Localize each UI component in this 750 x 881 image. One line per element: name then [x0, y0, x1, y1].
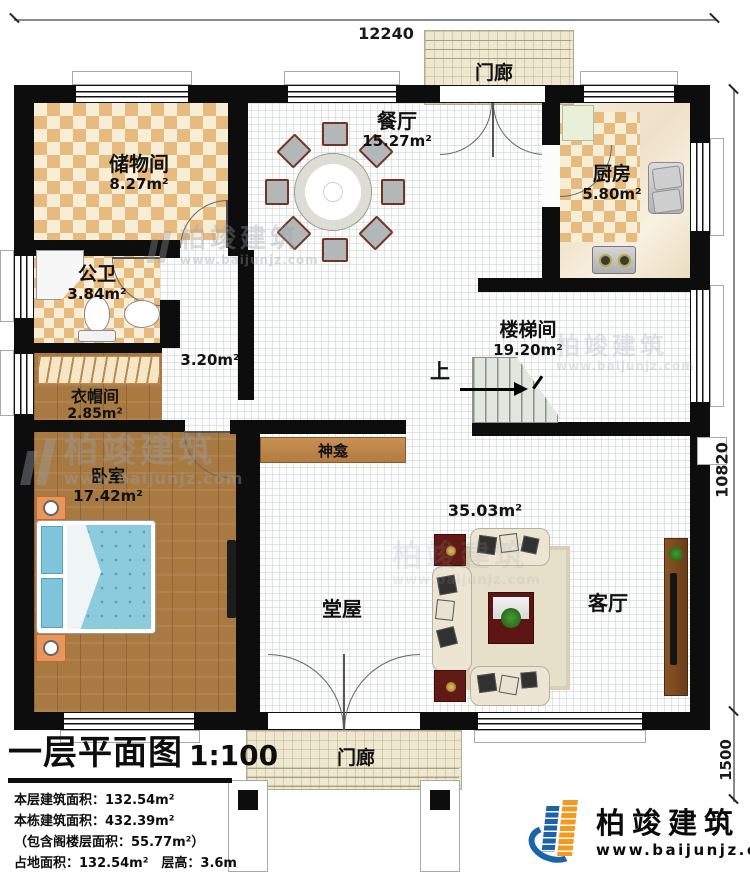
- watermark-url: www.baijunjz.com: [64, 468, 243, 490]
- watermark-url: www.baijunjz.com: [392, 572, 541, 590]
- dimension-line: [733, 90, 735, 802]
- decor-icon: [446, 682, 456, 692]
- dining-table-center: [323, 182, 343, 202]
- cushion: [499, 675, 520, 696]
- room-area: 5.80m²: [582, 186, 641, 203]
- chair-icon: [265, 179, 289, 205]
- burner-icon: [599, 254, 612, 267]
- stove: [592, 246, 636, 274]
- window: [14, 256, 34, 318]
- window-sill: [284, 71, 400, 85]
- window-sill: [474, 730, 646, 743]
- door-opening: [440, 85, 545, 103]
- info-line: 本层建筑面积：132.54m²: [14, 790, 237, 811]
- brand-website: www.baijunjz.com: [596, 843, 750, 858]
- tv-cabinet: [664, 538, 688, 696]
- cushion: [477, 673, 497, 693]
- window-sill: [710, 138, 724, 236]
- shrine-label: 神龛: [318, 443, 348, 460]
- chair-icon: [322, 238, 348, 262]
- cushion: [435, 599, 455, 621]
- main-hall-area-label: 35.03m²: [448, 502, 522, 520]
- dimension-right: 10820: [713, 442, 732, 498]
- wall-segment: [34, 343, 162, 353]
- room-label-cloakroom: 衣帽间 2.85m²: [67, 388, 122, 422]
- pillow: [41, 578, 63, 628]
- window: [478, 712, 642, 730]
- porch-bottom-label: 门廊: [337, 748, 375, 770]
- watermark-logo-icon: [17, 439, 61, 485]
- room-name: 厨房: [582, 164, 641, 186]
- room-area: 2.85m²: [67, 406, 122, 422]
- door-leaf: [492, 103, 494, 157]
- info-line: 占地面积：132.54m² 层高：3.6m: [14, 853, 237, 874]
- nightstand: [36, 634, 66, 662]
- room-label-stairwell: 楼梯间 19.20m²: [493, 320, 563, 359]
- room-name: 餐厅: [362, 110, 432, 133]
- room-name: 衣帽间: [67, 388, 122, 406]
- tv-icon: [670, 573, 677, 665]
- sink-basin: [652, 165, 683, 191]
- bathroom-sink: [124, 300, 160, 328]
- room-name: 楼梯间: [493, 320, 563, 342]
- window-sill: [710, 285, 724, 407]
- room-label-storage: 储物间 8.27m²: [109, 153, 169, 193]
- porch-top-label: 门廊: [475, 63, 513, 85]
- room-area: 8.27m²: [109, 176, 169, 193]
- room-area: 19.20m²: [493, 342, 563, 359]
- info-line: （包含阁楼层面积：55.77m²）: [14, 832, 237, 853]
- room-label-bathroom: 公卫 3.84m²: [67, 264, 126, 303]
- fridge: [562, 105, 594, 141]
- room-label-main-hall: 堂屋: [322, 598, 362, 621]
- chair-icon: [381, 179, 405, 205]
- bed: [36, 520, 156, 634]
- window-sill: [0, 250, 14, 322]
- watermark-name: 柏竣建筑: [64, 434, 243, 468]
- watermark-url: www.baijunjz.com: [180, 252, 319, 269]
- watermark-url: www.baijunjz.com: [556, 358, 695, 375]
- dimension-tick: [709, 13, 720, 24]
- plan-title: 一层平面图: [8, 736, 183, 770]
- lamp-icon: [43, 500, 59, 516]
- wall-segment: [238, 250, 254, 400]
- nightstand: [36, 496, 66, 520]
- wall-segment: [160, 300, 180, 348]
- dimension-porch: 1500: [717, 739, 735, 781]
- window: [584, 85, 674, 103]
- room-area: 15.27m²: [362, 133, 432, 150]
- burner-icon: [618, 254, 631, 267]
- watermark: 柏竣建筑 www.baijunjz.com: [148, 226, 319, 269]
- watermark-logo-icon: [145, 231, 176, 263]
- pillow: [41, 526, 63, 574]
- window: [288, 85, 396, 103]
- porch-column-core: [430, 790, 450, 810]
- closet-rail: [38, 356, 160, 384]
- info-line: 本栋建筑面积：432.39m²: [14, 811, 237, 832]
- door-opening: [542, 145, 560, 207]
- dimension-line: [14, 19, 716, 21]
- plan-title-row: 一层平面图 1:100: [8, 736, 278, 770]
- window-sill: [72, 71, 192, 85]
- title-underline: [8, 778, 232, 783]
- sink-basin: [652, 188, 683, 214]
- plan-scale: 1:100: [189, 742, 278, 770]
- kitchen-sink: [648, 162, 684, 214]
- porch-column-core: [238, 790, 258, 810]
- window: [690, 143, 710, 231]
- cushion: [520, 671, 537, 688]
- coffee-table: [488, 592, 534, 644]
- arrow-icon: [514, 382, 528, 396]
- room-name: 公卫: [67, 264, 126, 286]
- dimension-tick: [9, 13, 20, 24]
- room-label-living: 客厅: [588, 592, 628, 615]
- plant-icon: [669, 547, 683, 561]
- plant-icon: [501, 608, 521, 628]
- stairs-up-label: 上: [430, 360, 450, 383]
- room-label-kitchen: 厨房 5.80m²: [582, 164, 641, 203]
- brand-name: 柏竣建筑: [596, 809, 750, 838]
- window: [64, 712, 194, 730]
- title-info-block: 本层建筑面积：132.54m² 本栋建筑面积：432.39m² （包含阁楼层面积…: [14, 790, 237, 874]
- tv-icon: [227, 540, 236, 618]
- watermark: 柏竣建筑 www.baijunjz.com: [392, 542, 541, 590]
- watermark: 柏竣建筑 www.baijunjz.com: [22, 434, 243, 490]
- window: [14, 354, 34, 414]
- chair-icon: [322, 122, 348, 146]
- watermark-name: 柏竣建筑: [556, 334, 695, 358]
- brand-logo-icon: [528, 800, 586, 866]
- porch-top-steps: [425, 32, 571, 59]
- room-name: 储物间: [109, 153, 169, 176]
- stairs-direction-line: [460, 388, 516, 391]
- window: [76, 85, 188, 103]
- side-table: [434, 670, 466, 702]
- watermark: 柏竣建筑 www.baijunjz.com: [556, 334, 695, 375]
- room-area: 3.84m²: [67, 286, 126, 303]
- window-sill: [580, 71, 678, 85]
- room-label-dining: 餐厅 15.27m²: [362, 110, 432, 150]
- watermark-name: 柏竣建筑: [392, 542, 541, 572]
- floor-plan-canvas: 上 神龛: [0, 0, 750, 881]
- window-sill: [0, 350, 14, 416]
- brand-logo: 柏竣建筑 www.baijunjz.com: [528, 800, 750, 866]
- dimension-top: 12240: [358, 24, 414, 43]
- lamp-icon: [43, 640, 59, 656]
- corridor-area-label: 3.20m²: [180, 352, 239, 369]
- toilet-tank: [78, 330, 116, 342]
- wall-segment: [478, 278, 690, 292]
- door-leaf: [343, 654, 345, 730]
- wall-segment: [472, 422, 690, 436]
- watermark-name: 柏竣建筑: [180, 226, 319, 252]
